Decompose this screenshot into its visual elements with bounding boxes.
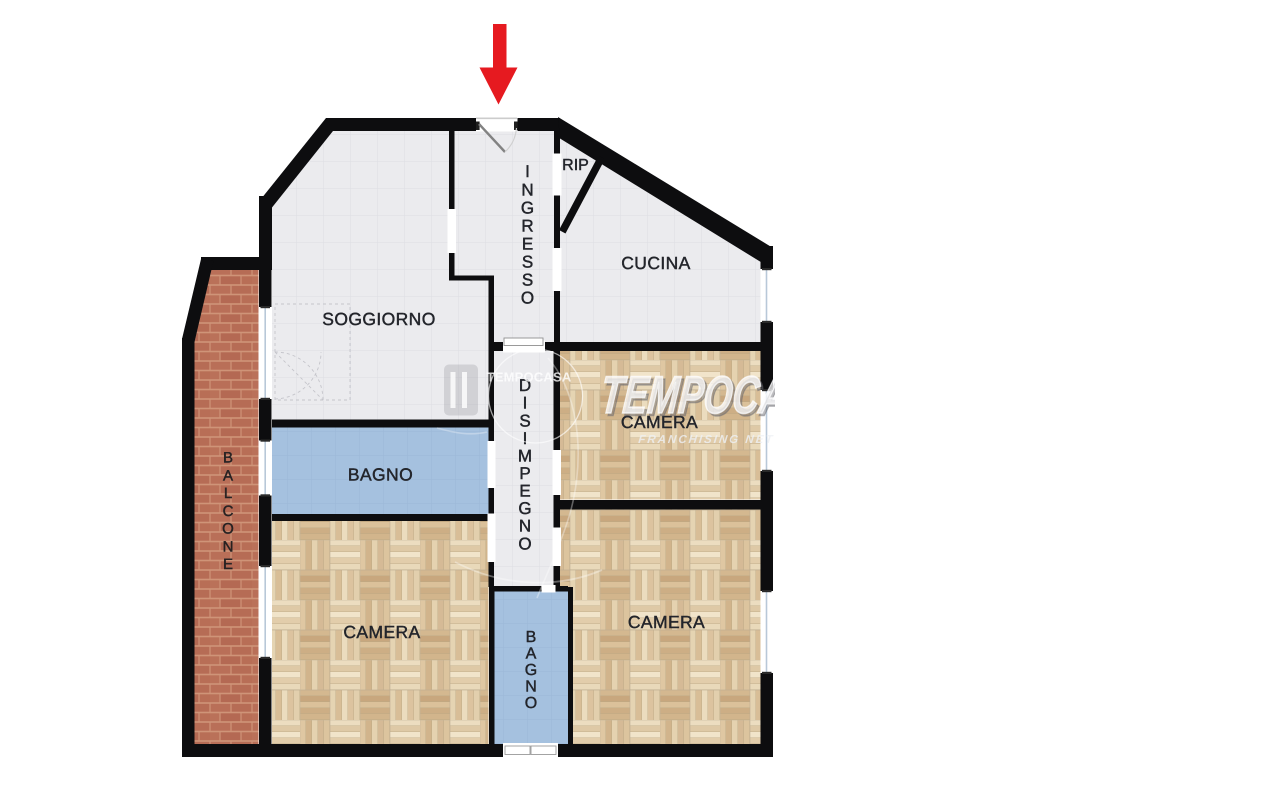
svg-text:G: G <box>518 499 531 518</box>
svg-text:CAMERA: CAMERA <box>343 622 420 642</box>
svg-text:G: G <box>521 198 534 217</box>
svg-text:O: O <box>521 289 534 308</box>
svg-text:A: A <box>526 645 537 662</box>
svg-text:O: O <box>222 521 234 538</box>
svg-text:S: S <box>519 411 530 430</box>
svg-text:CAMERA: CAMERA <box>628 612 705 632</box>
svg-text:S: S <box>522 271 533 290</box>
svg-text:C: C <box>223 503 234 520</box>
svg-text:G: G <box>525 662 537 679</box>
svg-text:TEMPOCASA: TEMPOCASA <box>598 366 841 425</box>
svg-text:O: O <box>525 695 537 712</box>
svg-text:BAGNO: BAGNO <box>348 465 413 485</box>
svg-text:S: S <box>522 253 533 272</box>
svg-text:RIP: RIP <box>562 157 589 174</box>
svg-text:B: B <box>526 629 537 646</box>
svg-text:E: E <box>519 482 530 501</box>
svg-text:I: I <box>523 394 528 413</box>
svg-text:M: M <box>518 446 532 465</box>
svg-text:N: N <box>223 538 234 555</box>
svg-text:N: N <box>519 517 531 536</box>
svg-text:N: N <box>521 180 533 199</box>
svg-text:P: P <box>519 464 530 483</box>
svg-text:I: I <box>523 429 528 448</box>
svg-text:SOGGIORNO: SOGGIORNO <box>322 309 435 329</box>
svg-text:O: O <box>518 534 531 553</box>
svg-text:E: E <box>522 235 533 254</box>
svg-text:B: B <box>223 450 233 467</box>
svg-text:R: R <box>521 216 533 235</box>
svg-text:A: A <box>223 467 233 484</box>
svg-text:N: N <box>525 678 537 695</box>
svg-text:E: E <box>223 556 233 573</box>
svg-text:I: I <box>525 162 530 181</box>
svg-text:CUCINA: CUCINA <box>621 253 691 273</box>
svg-text:FRANCHISING NETWORK: FRANCHISING NETWORK <box>638 434 820 446</box>
svg-text:L: L <box>224 485 232 502</box>
